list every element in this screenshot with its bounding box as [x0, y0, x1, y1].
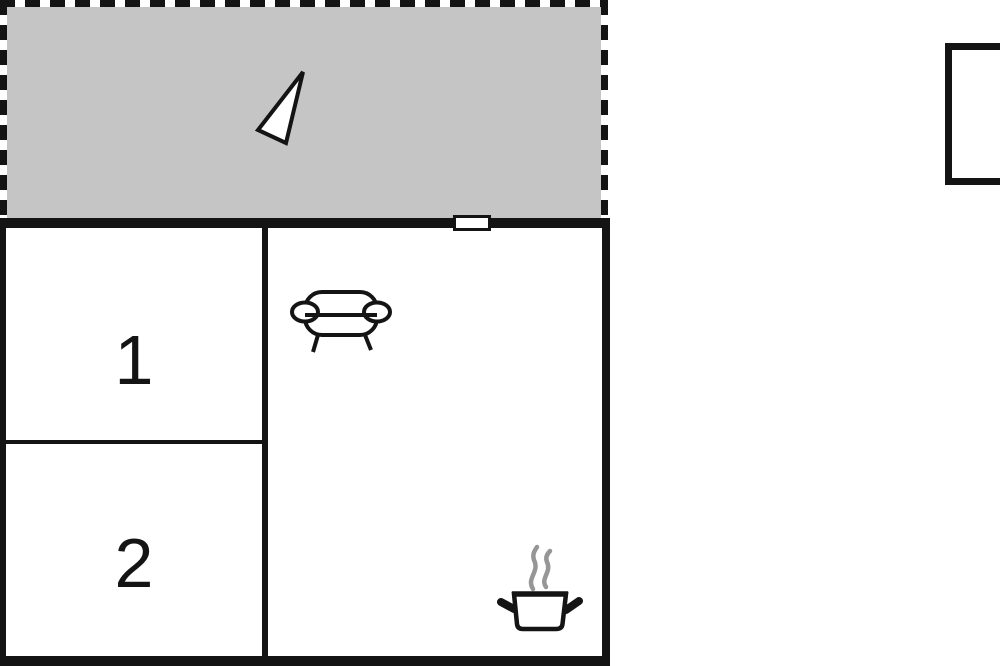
room-1-label: 1 — [115, 325, 154, 395]
detail-rectangle — [945, 43, 1000, 185]
terrace-area — [0, 0, 608, 222]
sofa-icon — [288, 286, 398, 356]
terrace-dashed-border-right — [601, 0, 608, 222]
door-opening-marker — [453, 215, 491, 231]
floor-plan-canvas: 1 2 — [0, 0, 1000, 666]
terrace-dashed-border-top — [0, 0, 608, 7]
room-2: 2 — [6, 444, 262, 656]
building-outline: 1 2 — [0, 218, 610, 666]
living-room — [268, 228, 602, 656]
room-2-label: 2 — [115, 528, 154, 598]
north-arrow-icon — [250, 60, 310, 150]
room-1: 1 — [6, 228, 262, 440]
terrace-dashed-border-left — [0, 0, 7, 222]
steam-lines — [531, 547, 550, 589]
cooking-pot-icon — [492, 538, 584, 634]
